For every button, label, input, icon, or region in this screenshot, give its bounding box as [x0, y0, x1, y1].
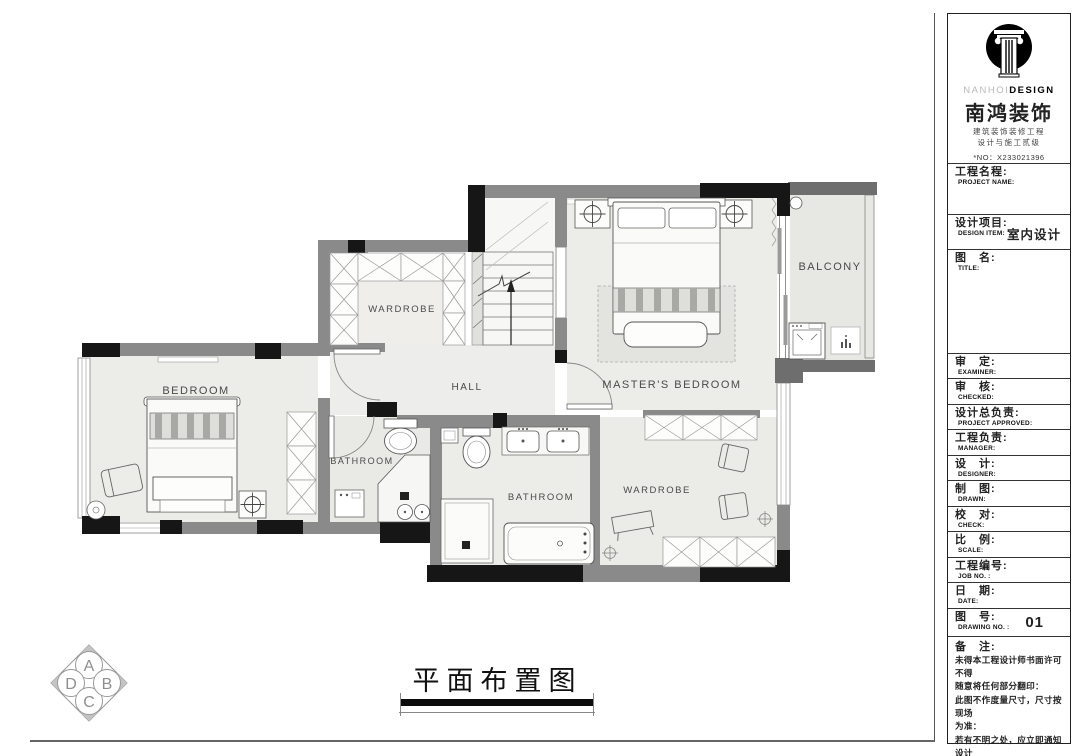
field-title: 图 名: TITLE: — [948, 249, 1070, 353]
field-project-approved: 设计总负责: PROJECT APPROVED: — [948, 404, 1070, 429]
title-block-panel: NANHOIDESIGN 南鸿装饰 建筑装饰装修工程 设计与施工贰级 *NO：X… — [947, 13, 1071, 744]
washer-cabinet — [335, 490, 364, 517]
toilet-tank — [384, 419, 417, 428]
drawing-title: 平面布置图 — [375, 659, 620, 698]
company-logo-block: NANHOIDESIGN 南鸿装饰 建筑装饰装修工程 设计与施工贰级 *NO：X… — [948, 14, 1070, 163]
brand-subtitle-2: 设计与施工贰级 — [948, 137, 1070, 148]
drawing-sheet: BEDROOM WARDROBE HALL MASTER'S BEDROOM B… — [0, 0, 1080, 756]
field-drawn: 制 图: DRAWN: — [948, 480, 1070, 506]
field-designer: 设 计: DESIGNER: — [948, 455, 1070, 480]
room-label-bedroom: BEDROOM — [162, 385, 229, 397]
small-sink — [441, 428, 458, 443]
frame-vertical-line — [934, 13, 935, 742]
bathtub — [504, 523, 594, 564]
pillow — [669, 208, 716, 228]
room-label-balcony: BALCONY — [798, 261, 861, 273]
blanket-stripes — [613, 288, 720, 312]
drawing-no-value: 01 — [1025, 614, 1044, 631]
corner-logo-letter-a: A — [84, 658, 95, 675]
faucet — [400, 492, 409, 500]
corner-logo-letter-c: C — [83, 694, 95, 711]
brand-registration-no: *NO：X233021396 — [948, 152, 1070, 163]
toilet-tank — [463, 428, 490, 436]
room-label-wardrobe-top: WARDROBE — [368, 304, 436, 315]
frame-bottom-line — [30, 740, 935, 742]
field-design-item: 设计项目: DESIGN ITEM: 室内设计 — [948, 214, 1070, 249]
room-label-hall: HALL — [451, 382, 482, 393]
corner-logo-letter-b: B — [102, 676, 113, 693]
floor-plan: BEDROOM WARDROBE HALL MASTER'S BEDROOM B… — [0, 0, 1080, 756]
bed-bench — [624, 322, 707, 347]
brand-subtitle-1: 建筑装饰装修工程 — [948, 126, 1070, 137]
bed-bench — [153, 477, 232, 500]
field-examiner: 审 定: EXAMINER: — [948, 353, 1070, 378]
design-item-value: 室内设计 — [1007, 224, 1061, 243]
title-tick-right — [593, 693, 594, 716]
room-label-bathroom-main: BATHROOM — [508, 492, 574, 503]
room-label-wardrobe-right: WARDROBE — [623, 485, 691, 496]
field-project-name: 工程名程: PROJECT NAME: — [948, 163, 1070, 214]
field-job-no: 工程编号: JOB NO. : — [948, 557, 1070, 582]
notes-label: 备 注: — [955, 641, 1065, 654]
room-label-bathroom-left: BATHROOM — [330, 456, 393, 466]
pillow — [618, 208, 665, 228]
brand-chinese-name: 南鸿装饰 — [948, 97, 1070, 126]
field-scale: 比 例: SCALE: — [948, 531, 1070, 557]
column-logo-icon — [982, 22, 1036, 82]
field-check: 校 对: CHECK: — [948, 506, 1070, 531]
title-underline-thick — [401, 699, 593, 706]
field-date: 日 期: DATE: — [948, 582, 1070, 608]
field-manager: 工程负责: MANAGER: — [948, 429, 1070, 455]
side-table — [87, 501, 105, 519]
floor-drain — [790, 197, 802, 209]
room-label-master-bedroom: MASTER'S BEDROOM — [602, 379, 741, 391]
title-tick-left — [400, 693, 401, 716]
shower-drain — [462, 541, 470, 549]
title-underline-thin — [399, 712, 595, 713]
shower — [441, 499, 493, 563]
brand-english-name: NANHOIDESIGN — [948, 85, 1070, 96]
corner-logo: A D C B — [48, 638, 132, 728]
field-drawing-no: 图 号: DRAWING NO. : 01 — [948, 608, 1070, 636]
bed-bench-2 — [160, 500, 225, 512]
field-checked: 审 核: CHECKED: — [948, 378, 1070, 404]
corner-logo-letter-d: D — [65, 676, 77, 693]
field-notes: 备 注: 未得本工程设计师书面许可不得 随意将任何部分翻印： 此图不作度量尺寸，… — [948, 636, 1070, 743]
